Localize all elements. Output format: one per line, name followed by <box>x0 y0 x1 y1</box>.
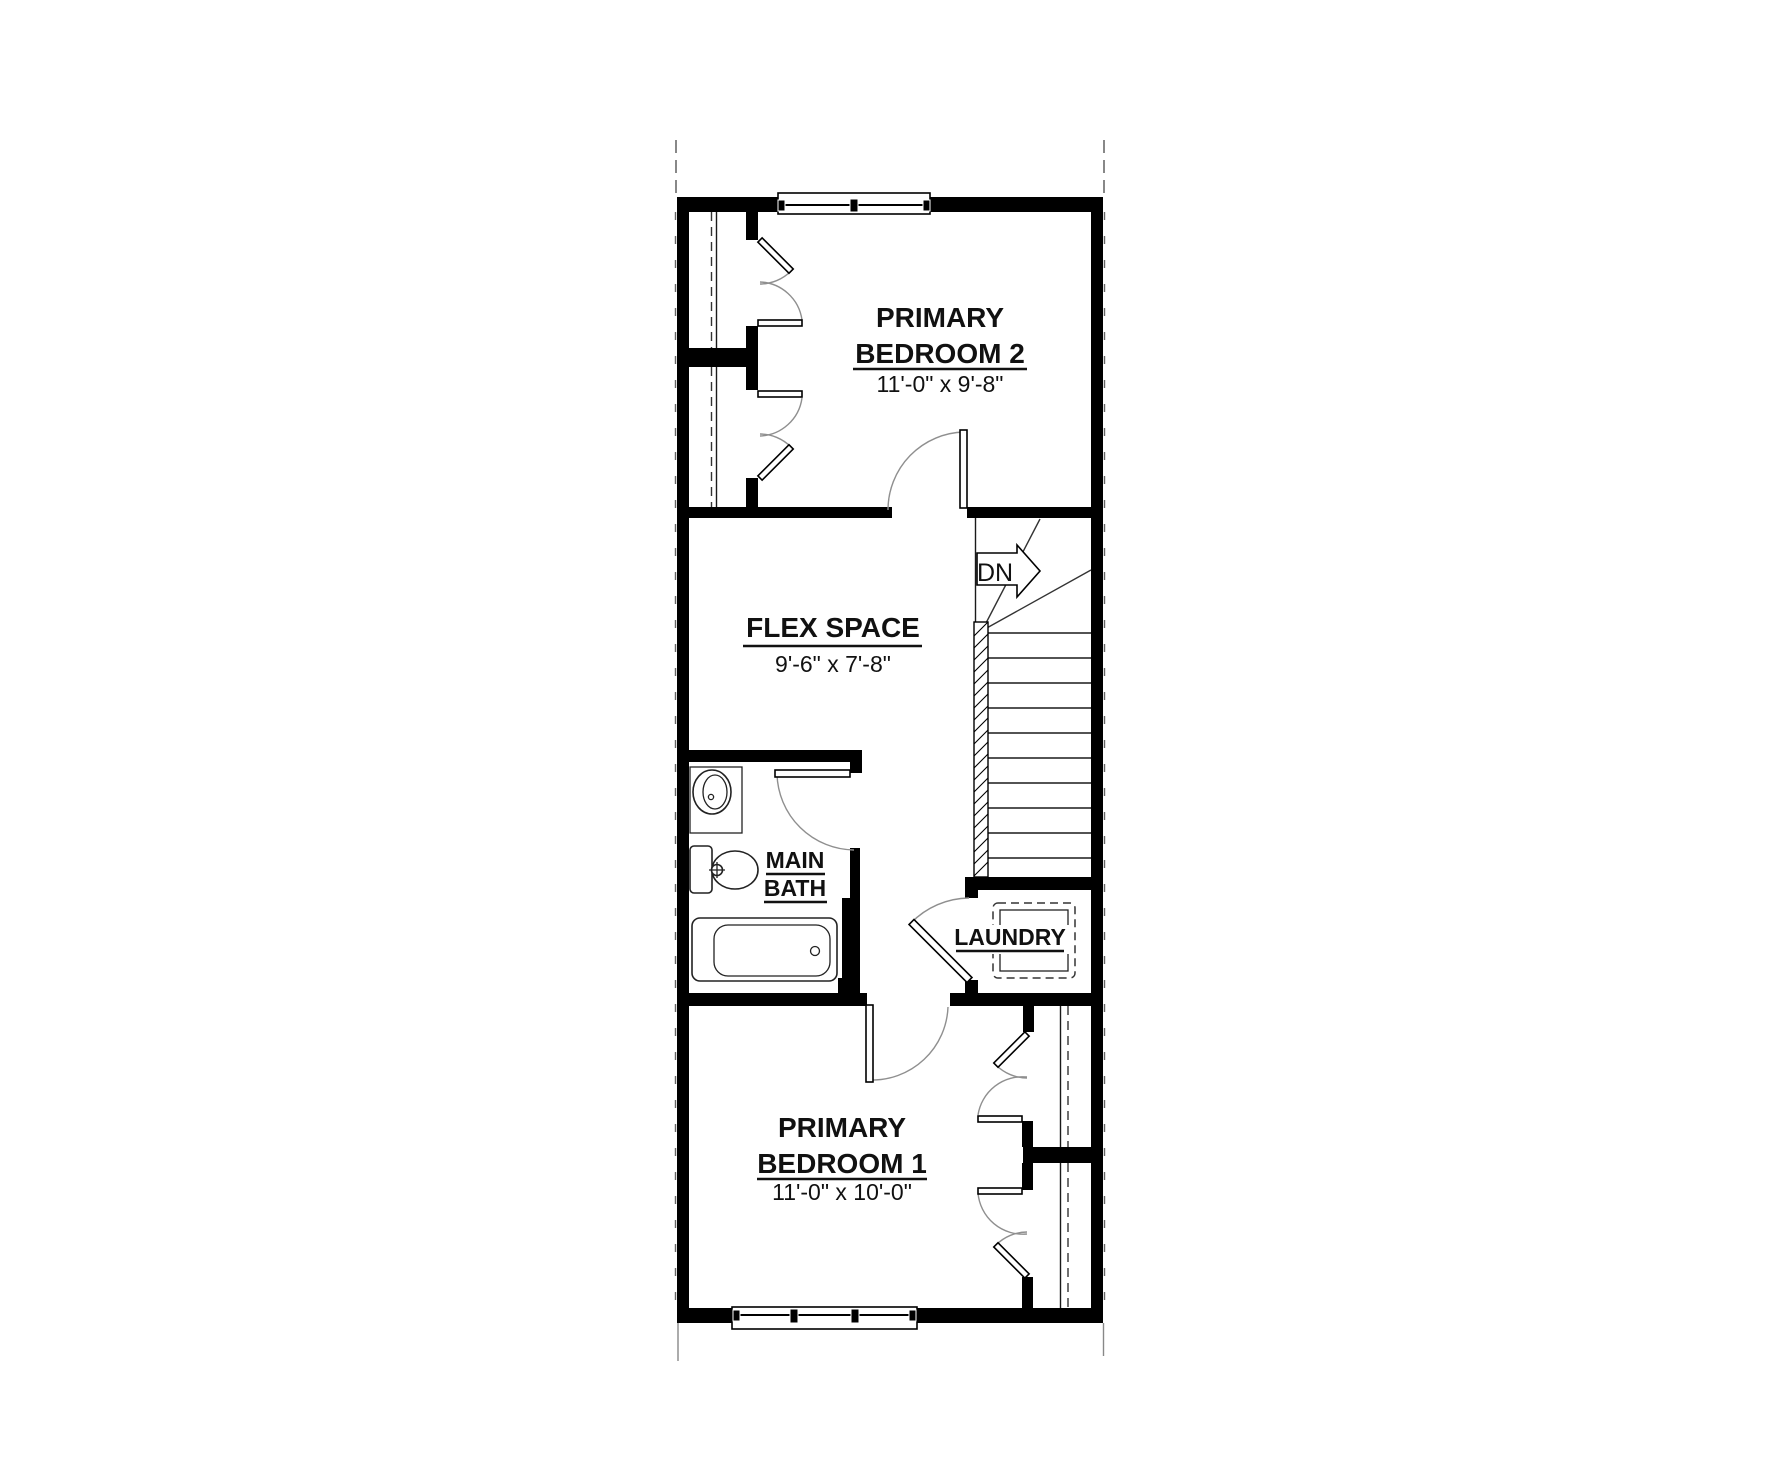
label-main-bath: MAIN BATH <box>764 847 827 902</box>
wall-bath-east-a <box>850 848 860 898</box>
bedroom2-door-leaf <box>960 430 967 508</box>
wall-closet2-divider <box>677 348 753 367</box>
flex-space-name: FLEX SPACE <box>746 612 920 643</box>
sink-icon <box>693 770 731 814</box>
wall-closet2-jamb-top <box>746 212 758 240</box>
closet1-lower-door-leaf-a <box>978 1188 1022 1194</box>
primary-bedroom-1-dimensions: 11'-0" x 10'-0" <box>772 1179 912 1205</box>
stair-direction-label: DN <box>977 559 1013 587</box>
stair-treads <box>988 633 1091 858</box>
window-bottom-mullion-1 <box>790 1309 798 1323</box>
laundry-name: LAUNDRY <box>954 924 1066 950</box>
wall-bath-top <box>677 750 850 762</box>
window-top-cap-left <box>778 200 785 211</box>
bedroom1-door-leaf <box>866 1005 873 1082</box>
wall-closet1-mid-lower <box>1022 1163 1033 1190</box>
wall-laundry-west-top <box>965 890 978 898</box>
closet1-lower-door-leaf-b <box>994 1243 1029 1278</box>
closet2-lower-door-leaf-a <box>758 391 802 397</box>
label-primary-bedroom-1: PRIMARY BEDROOM 1 11'-0" x 10'-0" <box>757 1112 927 1205</box>
window-top-mullion <box>850 199 858 212</box>
floor-plan-page: DN <box>0 0 1780 1480</box>
closet2-upper-door-leaf-b <box>758 320 802 326</box>
main-bath-name-line2: BATH <box>764 875 826 901</box>
window-bottom-cap-left <box>733 1310 740 1321</box>
closet2-upper-door-swing-b <box>760 282 802 320</box>
flex-space-dimensions: 9'-6" x 7'-8" <box>775 651 891 677</box>
wall-closet2-jamb-bottom <box>746 478 758 511</box>
closet1-upper-door-leaf-a <box>994 1032 1029 1067</box>
wall-closet1-mid-upper <box>1022 1121 1033 1147</box>
window-bottom <box>732 1307 917 1329</box>
window-top <box>778 193 930 214</box>
wall-bath-east-b <box>842 898 860 978</box>
wall-bed2-flex-left <box>677 507 892 518</box>
wall-bottom-left <box>677 1308 732 1323</box>
primary-bedroom-2-dimensions: 11'-0" x 9'-8" <box>877 371 1004 397</box>
bedroom1-door-swing <box>870 1007 948 1080</box>
wall-bottom-right <box>917 1308 1103 1323</box>
toilet-tank <box>690 846 712 893</box>
wall-bed1-top-right <box>950 993 1091 1006</box>
wall-bath-door-jamb <box>850 750 862 773</box>
window-bottom-frame <box>732 1307 917 1329</box>
closet2-lower-door-swing-a <box>760 398 802 436</box>
label-laundry: LAUNDRY <box>950 924 1070 954</box>
closet2-upper-door-leaf-a <box>758 238 793 273</box>
label-primary-bedroom-2: PRIMARY BEDROOM 2 11'-0" x 9'-8" <box>853 302 1027 397</box>
closet1-upper-door-swing-b <box>978 1077 1027 1115</box>
wall-right <box>1091 197 1103 1323</box>
wall-laundry-top <box>965 877 1091 890</box>
window-bottom-mullion-2 <box>851 1309 859 1323</box>
staircase: DN <box>974 518 1091 877</box>
floor-plan-drawing: DN <box>0 0 1780 1480</box>
wall-top-right <box>930 197 1103 212</box>
window-top-cap-right <box>923 200 930 211</box>
bath-door-leaf <box>775 770 850 777</box>
laundry-door-swing <box>911 898 969 923</box>
primary-bedroom-2-name-line1: PRIMARY <box>876 302 1004 333</box>
wall-closet1-jamb-bottom <box>1022 1277 1033 1308</box>
bath-door-swing <box>777 774 854 850</box>
closet1-lower-door-swing-a <box>978 1193 1027 1234</box>
closet2-lower-door-leaf-b <box>758 445 793 480</box>
main-bath-name-line1: MAIN <box>766 847 825 873</box>
wall-top-left <box>677 197 778 212</box>
wall-bed2-flex-right <box>967 507 1091 518</box>
wall-closet1-jamb-top <box>1023 1006 1034 1032</box>
closet1-upper-door-leaf-b <box>978 1116 1022 1122</box>
wall-bed1-top-left <box>677 993 867 1006</box>
primary-bedroom-1-name-line1: PRIMARY <box>778 1112 906 1143</box>
bedroom2-door-swing <box>888 432 964 510</box>
primary-bedroom-2-name-line2: BEDROOM 2 <box>855 338 1025 369</box>
label-flex-space: FLEX SPACE 9'-6" x 7'-8" <box>743 612 922 677</box>
window-bottom-cap-right <box>909 1310 916 1321</box>
wall-closet1-divider <box>1023 1147 1091 1163</box>
primary-bedroom-1-name-line2: BEDROOM 1 <box>757 1148 927 1179</box>
